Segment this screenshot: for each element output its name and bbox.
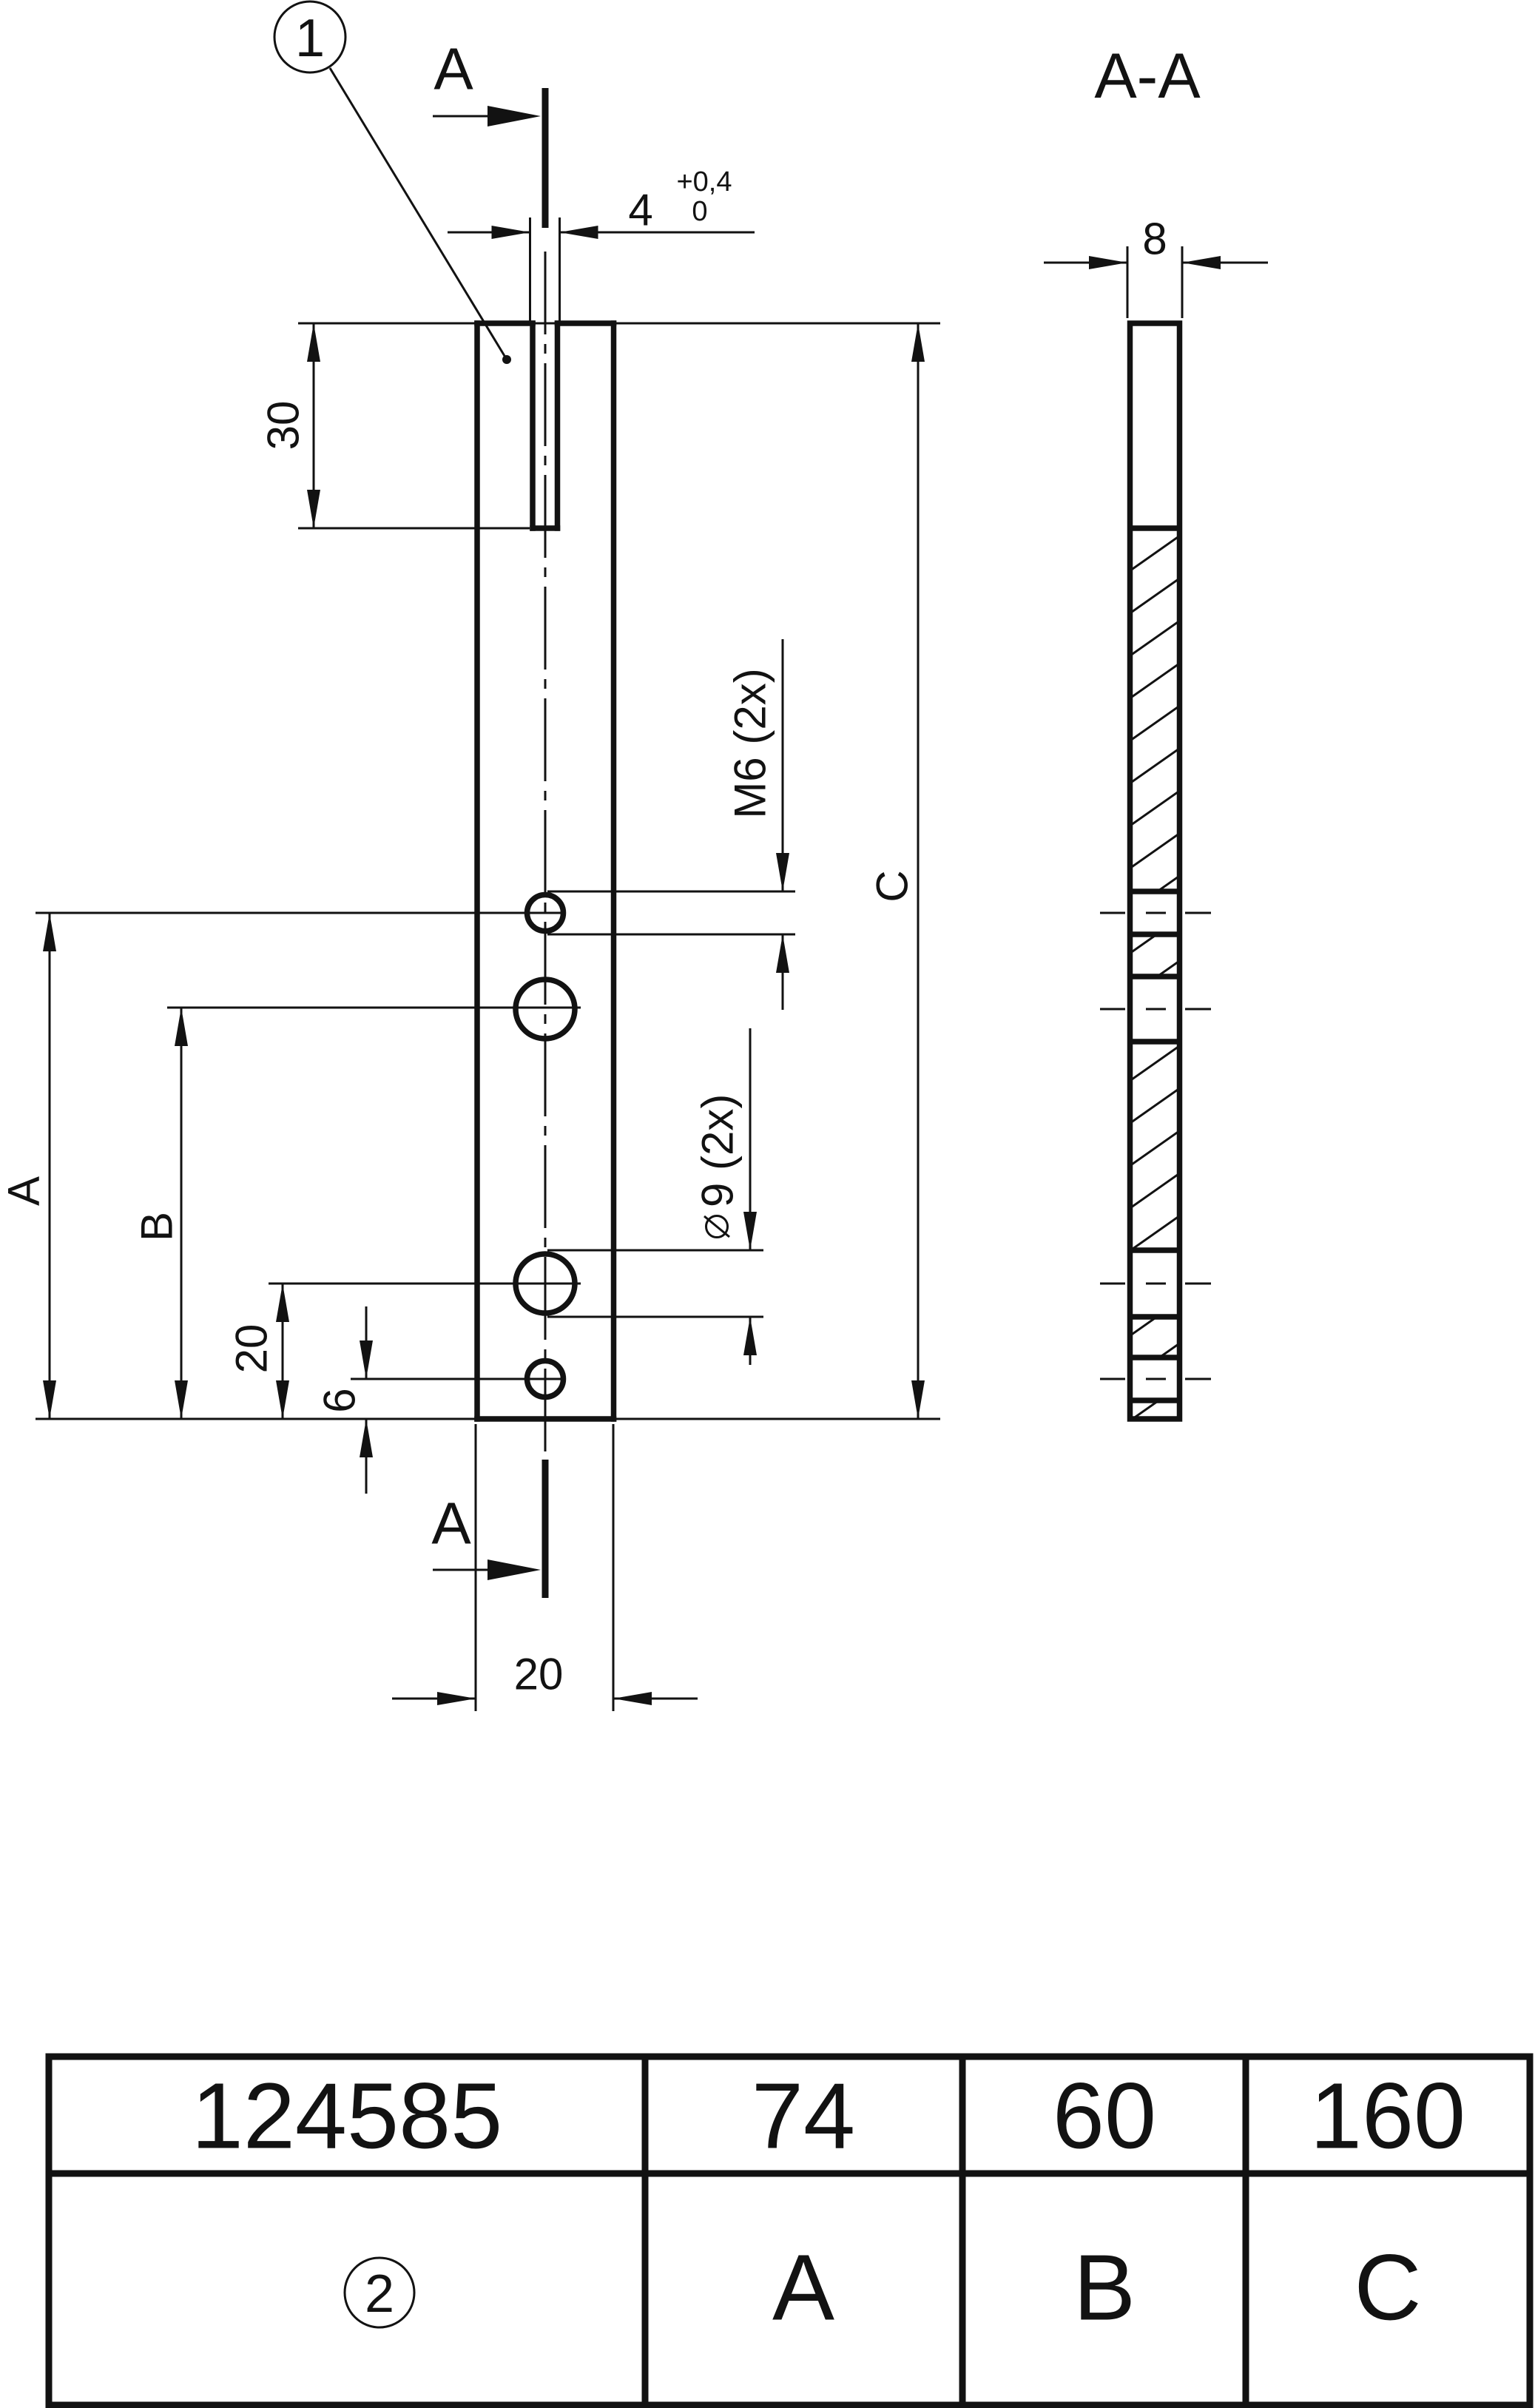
svg-text:B: B	[132, 1212, 182, 1241]
svg-text:C: C	[868, 870, 917, 902]
svg-text:20: 20	[227, 1324, 277, 1374]
svg-text:A: A	[0, 1176, 49, 1206]
svg-text:C: C	[1354, 2236, 1422, 2340]
svg-text:6: 6	[315, 1388, 365, 1412]
svg-text:30: 30	[259, 401, 308, 451]
svg-text:A: A	[431, 1491, 471, 1557]
svg-text:4: 4	[628, 186, 652, 235]
svg-text:A: A	[433, 36, 473, 102]
svg-text:1: 1	[295, 9, 325, 68]
svg-text:60: 60	[1053, 2064, 1156, 2168]
svg-text:+0,4: +0,4	[676, 166, 732, 198]
svg-text:2: 2	[365, 2264, 394, 2324]
svg-text:A: A	[772, 2236, 834, 2340]
svg-text:124585: 124585	[192, 2064, 502, 2168]
svg-text:0: 0	[692, 196, 707, 227]
svg-text:M6 (2x): M6 (2x)	[726, 668, 775, 818]
svg-text:160: 160	[1310, 2064, 1465, 2168]
svg-text:B: B	[1073, 2236, 1136, 2340]
svg-text:20: 20	[514, 1650, 564, 1699]
svg-text:A-A: A-A	[1094, 41, 1201, 112]
svg-text:9 (2x): 9 (2x)	[693, 1094, 743, 1207]
svg-text:74: 74	[752, 2064, 855, 2168]
svg-text:8: 8	[1142, 215, 1167, 264]
